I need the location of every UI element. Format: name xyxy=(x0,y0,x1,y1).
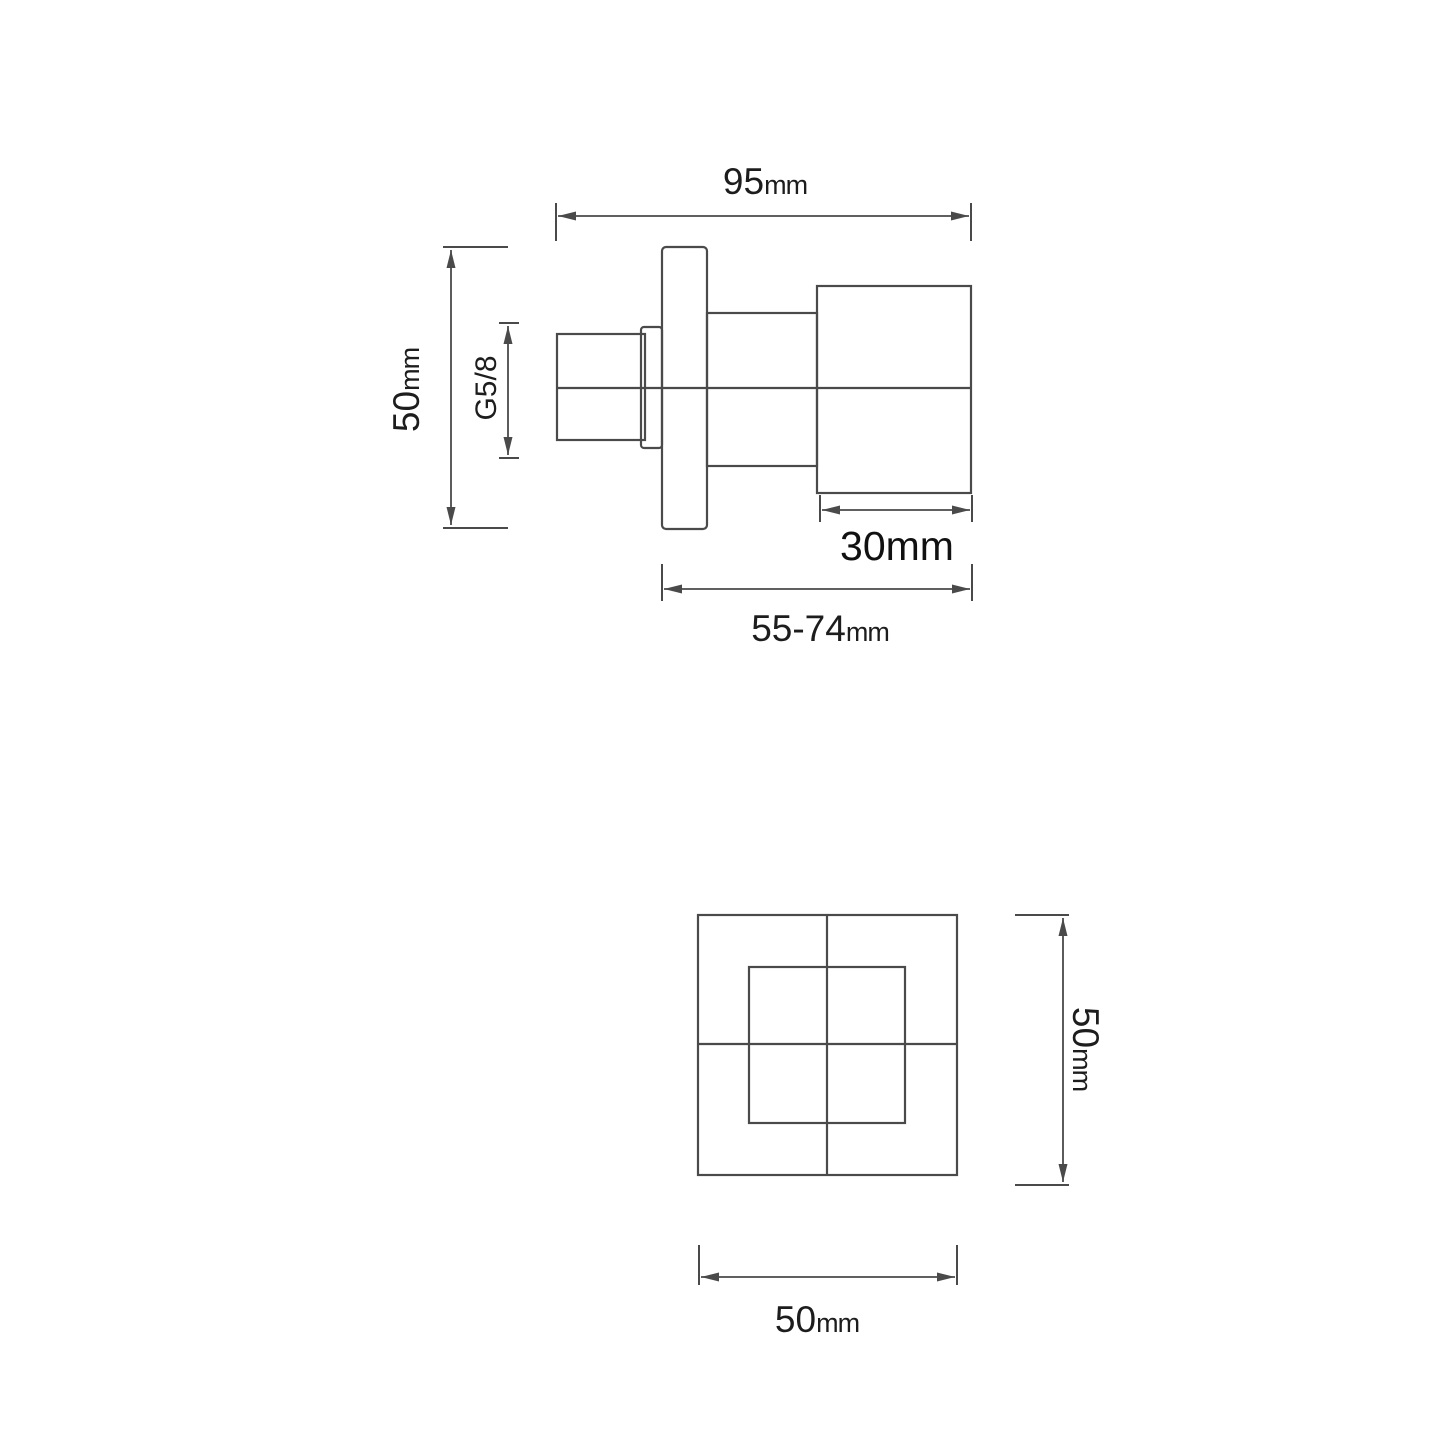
handle xyxy=(817,286,971,493)
dim-label-plate-width: 50mm xyxy=(775,1299,859,1340)
dim-label-handle-depth: 30mm xyxy=(840,523,954,569)
dim-label-overall-width: 95mm xyxy=(723,161,807,202)
technical-drawing: 95mm 50mm G5/8 30mm 55-74mm xyxy=(0,0,1445,1445)
front-view: 50mm 50mm xyxy=(698,915,1106,1340)
dim-label-thread: G5/8 xyxy=(470,355,503,420)
dim-label-plate-height: 50mm xyxy=(1065,1007,1106,1091)
valve-body xyxy=(707,313,817,466)
dim-label-install-depth: 55-74mm xyxy=(751,608,889,649)
dim-install-depth: 55-74mm xyxy=(662,564,972,649)
dim-thread: G5/8 xyxy=(470,323,519,458)
dim-plate-width: 50mm xyxy=(699,1245,957,1340)
dim-plate-height: 50mm xyxy=(1015,915,1106,1185)
side-view: 95mm 50mm G5/8 30mm 55-74mm xyxy=(386,161,972,649)
dim-label-flange-height: 50mm xyxy=(386,348,427,432)
dim-overall-width: 95mm xyxy=(556,161,971,241)
dim-handle-depth: 30mm xyxy=(820,495,972,569)
